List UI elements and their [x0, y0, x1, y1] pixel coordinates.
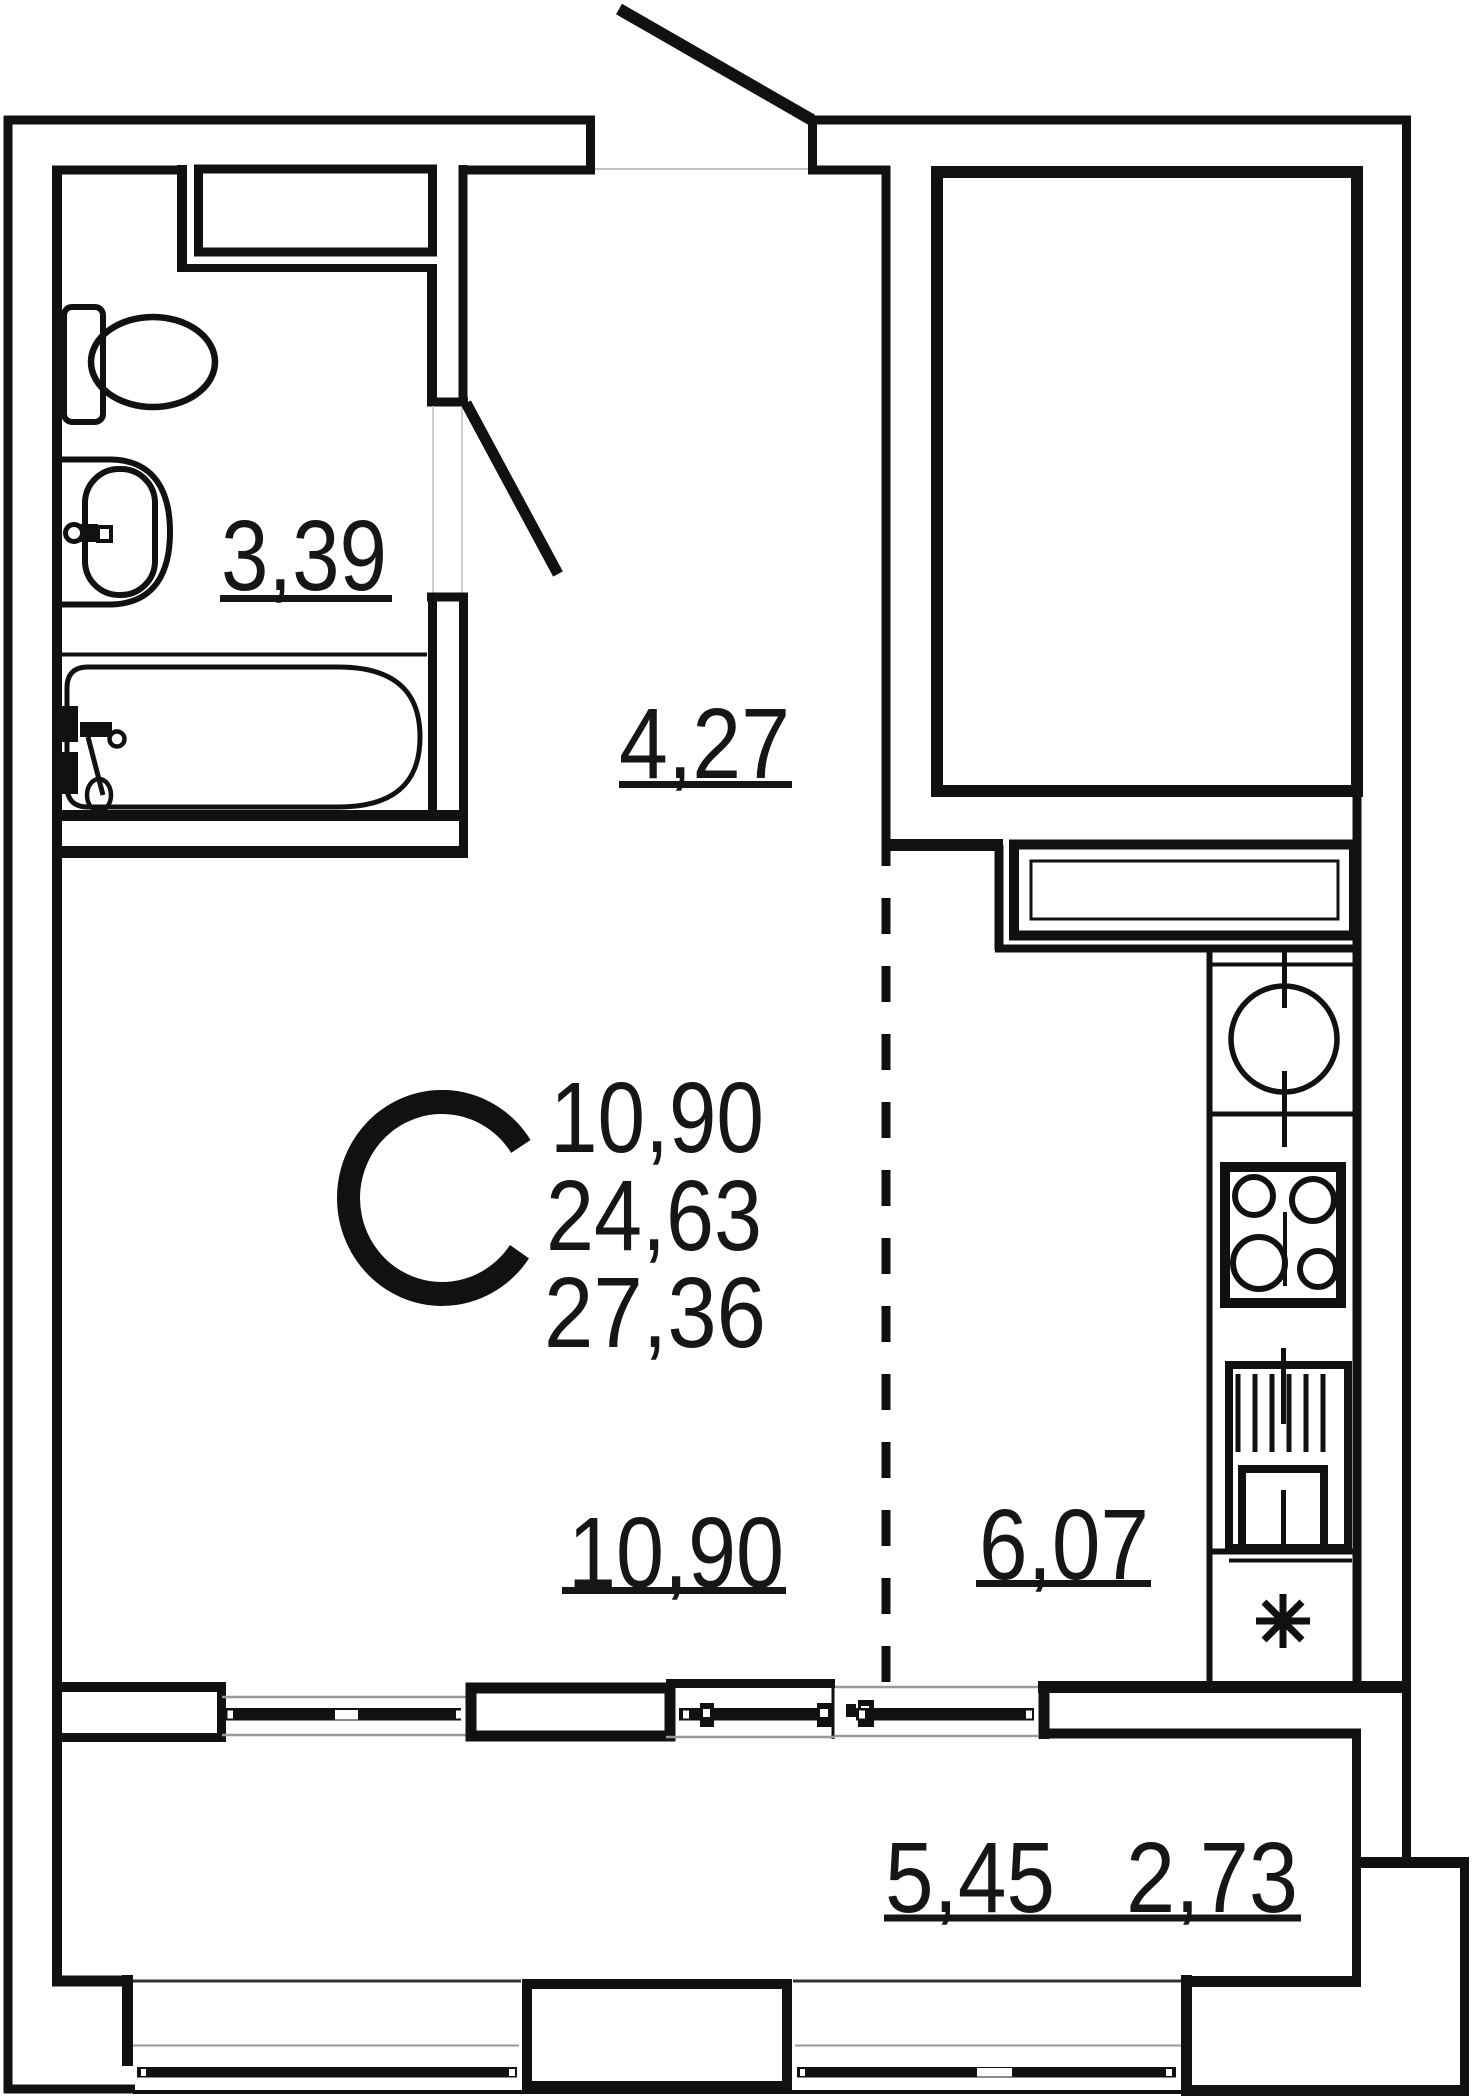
svg-text:10,90: 10,90 — [550, 1062, 764, 1174]
svg-text:24,63: 24,63 — [546, 1160, 762, 1272]
svg-text:27,36: 27,36 — [544, 1257, 766, 1369]
